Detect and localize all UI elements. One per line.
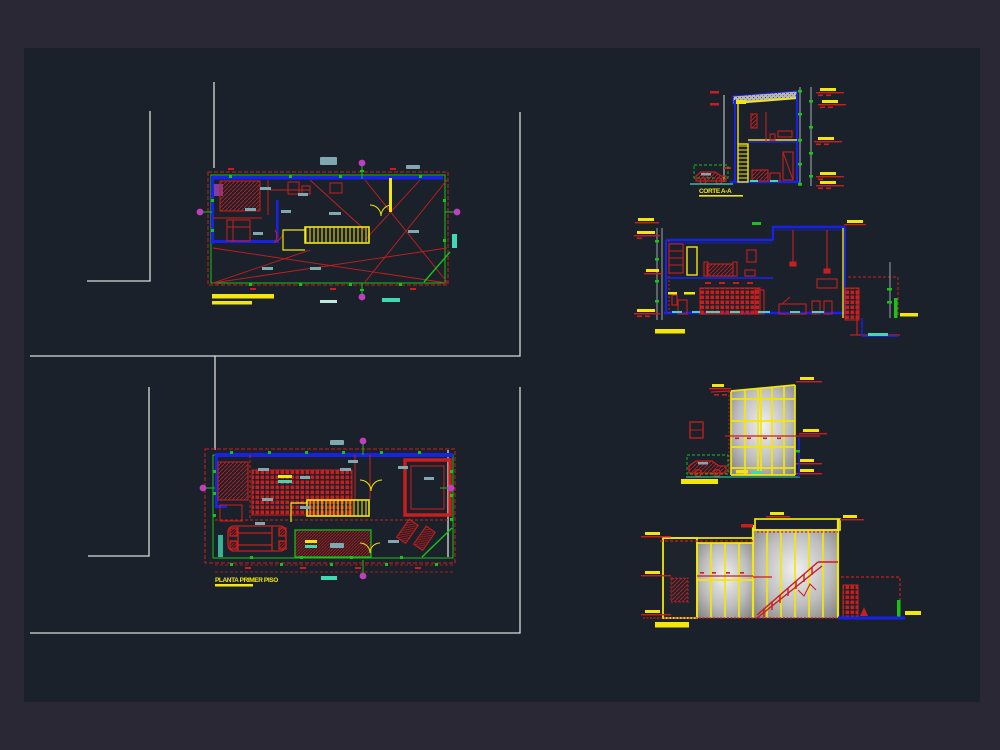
section-b-b[interactable] <box>634 218 918 336</box>
section-aa-title: CORTE A-A <box>699 188 743 197</box>
elevation-side-car-symbol <box>687 455 728 476</box>
section-aa-furniture <box>751 112 793 181</box>
elevation-front[interactable] <box>641 512 921 628</box>
section-bb-right-detail <box>843 228 918 336</box>
section-aa-level-dimensions <box>798 87 846 189</box>
level-callouts <box>814 88 846 189</box>
plan-upper-floor[interactable] <box>197 157 461 305</box>
section-bb-level-dimensions <box>634 218 662 320</box>
plan-lower-north-wall <box>215 453 453 457</box>
section-bb-upper-furniture <box>669 230 837 288</box>
elevation-front-right-detail <box>841 577 921 618</box>
section-aa-title-text: CORTE A-A <box>699 188 732 195</box>
elevation-front-window <box>671 578 688 602</box>
elevation-side-title-bar <box>681 479 718 484</box>
plan-lower-title-text: PLANTA PRIMER PISO <box>215 577 278 584</box>
drawing-canvas[interactable]: PLANTA PRIMER PISO <box>0 0 1000 750</box>
plan-upper-title-bars <box>212 294 274 305</box>
section-aa-stair <box>736 100 748 182</box>
section-bb-lower-furniture <box>672 283 832 314</box>
cad-application-window: PLANTA PRIMER PISO <box>0 0 1000 750</box>
section-a-a[interactable]: CORTE A-A <box>690 87 846 197</box>
plan-lower-title: PLANTA PRIMER PISO <box>215 577 278 587</box>
plan-first-floor[interactable]: PLANTA PRIMER PISO <box>200 438 455 587</box>
plan-upper-north-wall <box>211 176 443 180</box>
elevation-front-title-bar <box>655 622 689 628</box>
section-bb-door <box>687 247 697 275</box>
plan-upper-text-blobs <box>245 157 420 270</box>
elevation-front-ground <box>838 617 905 620</box>
section-bb-title-bar <box>655 329 685 334</box>
plan-upper-ramp-line <box>424 252 450 282</box>
plan-lower-car-symbol <box>228 526 286 551</box>
elevation-side[interactable] <box>681 377 827 484</box>
